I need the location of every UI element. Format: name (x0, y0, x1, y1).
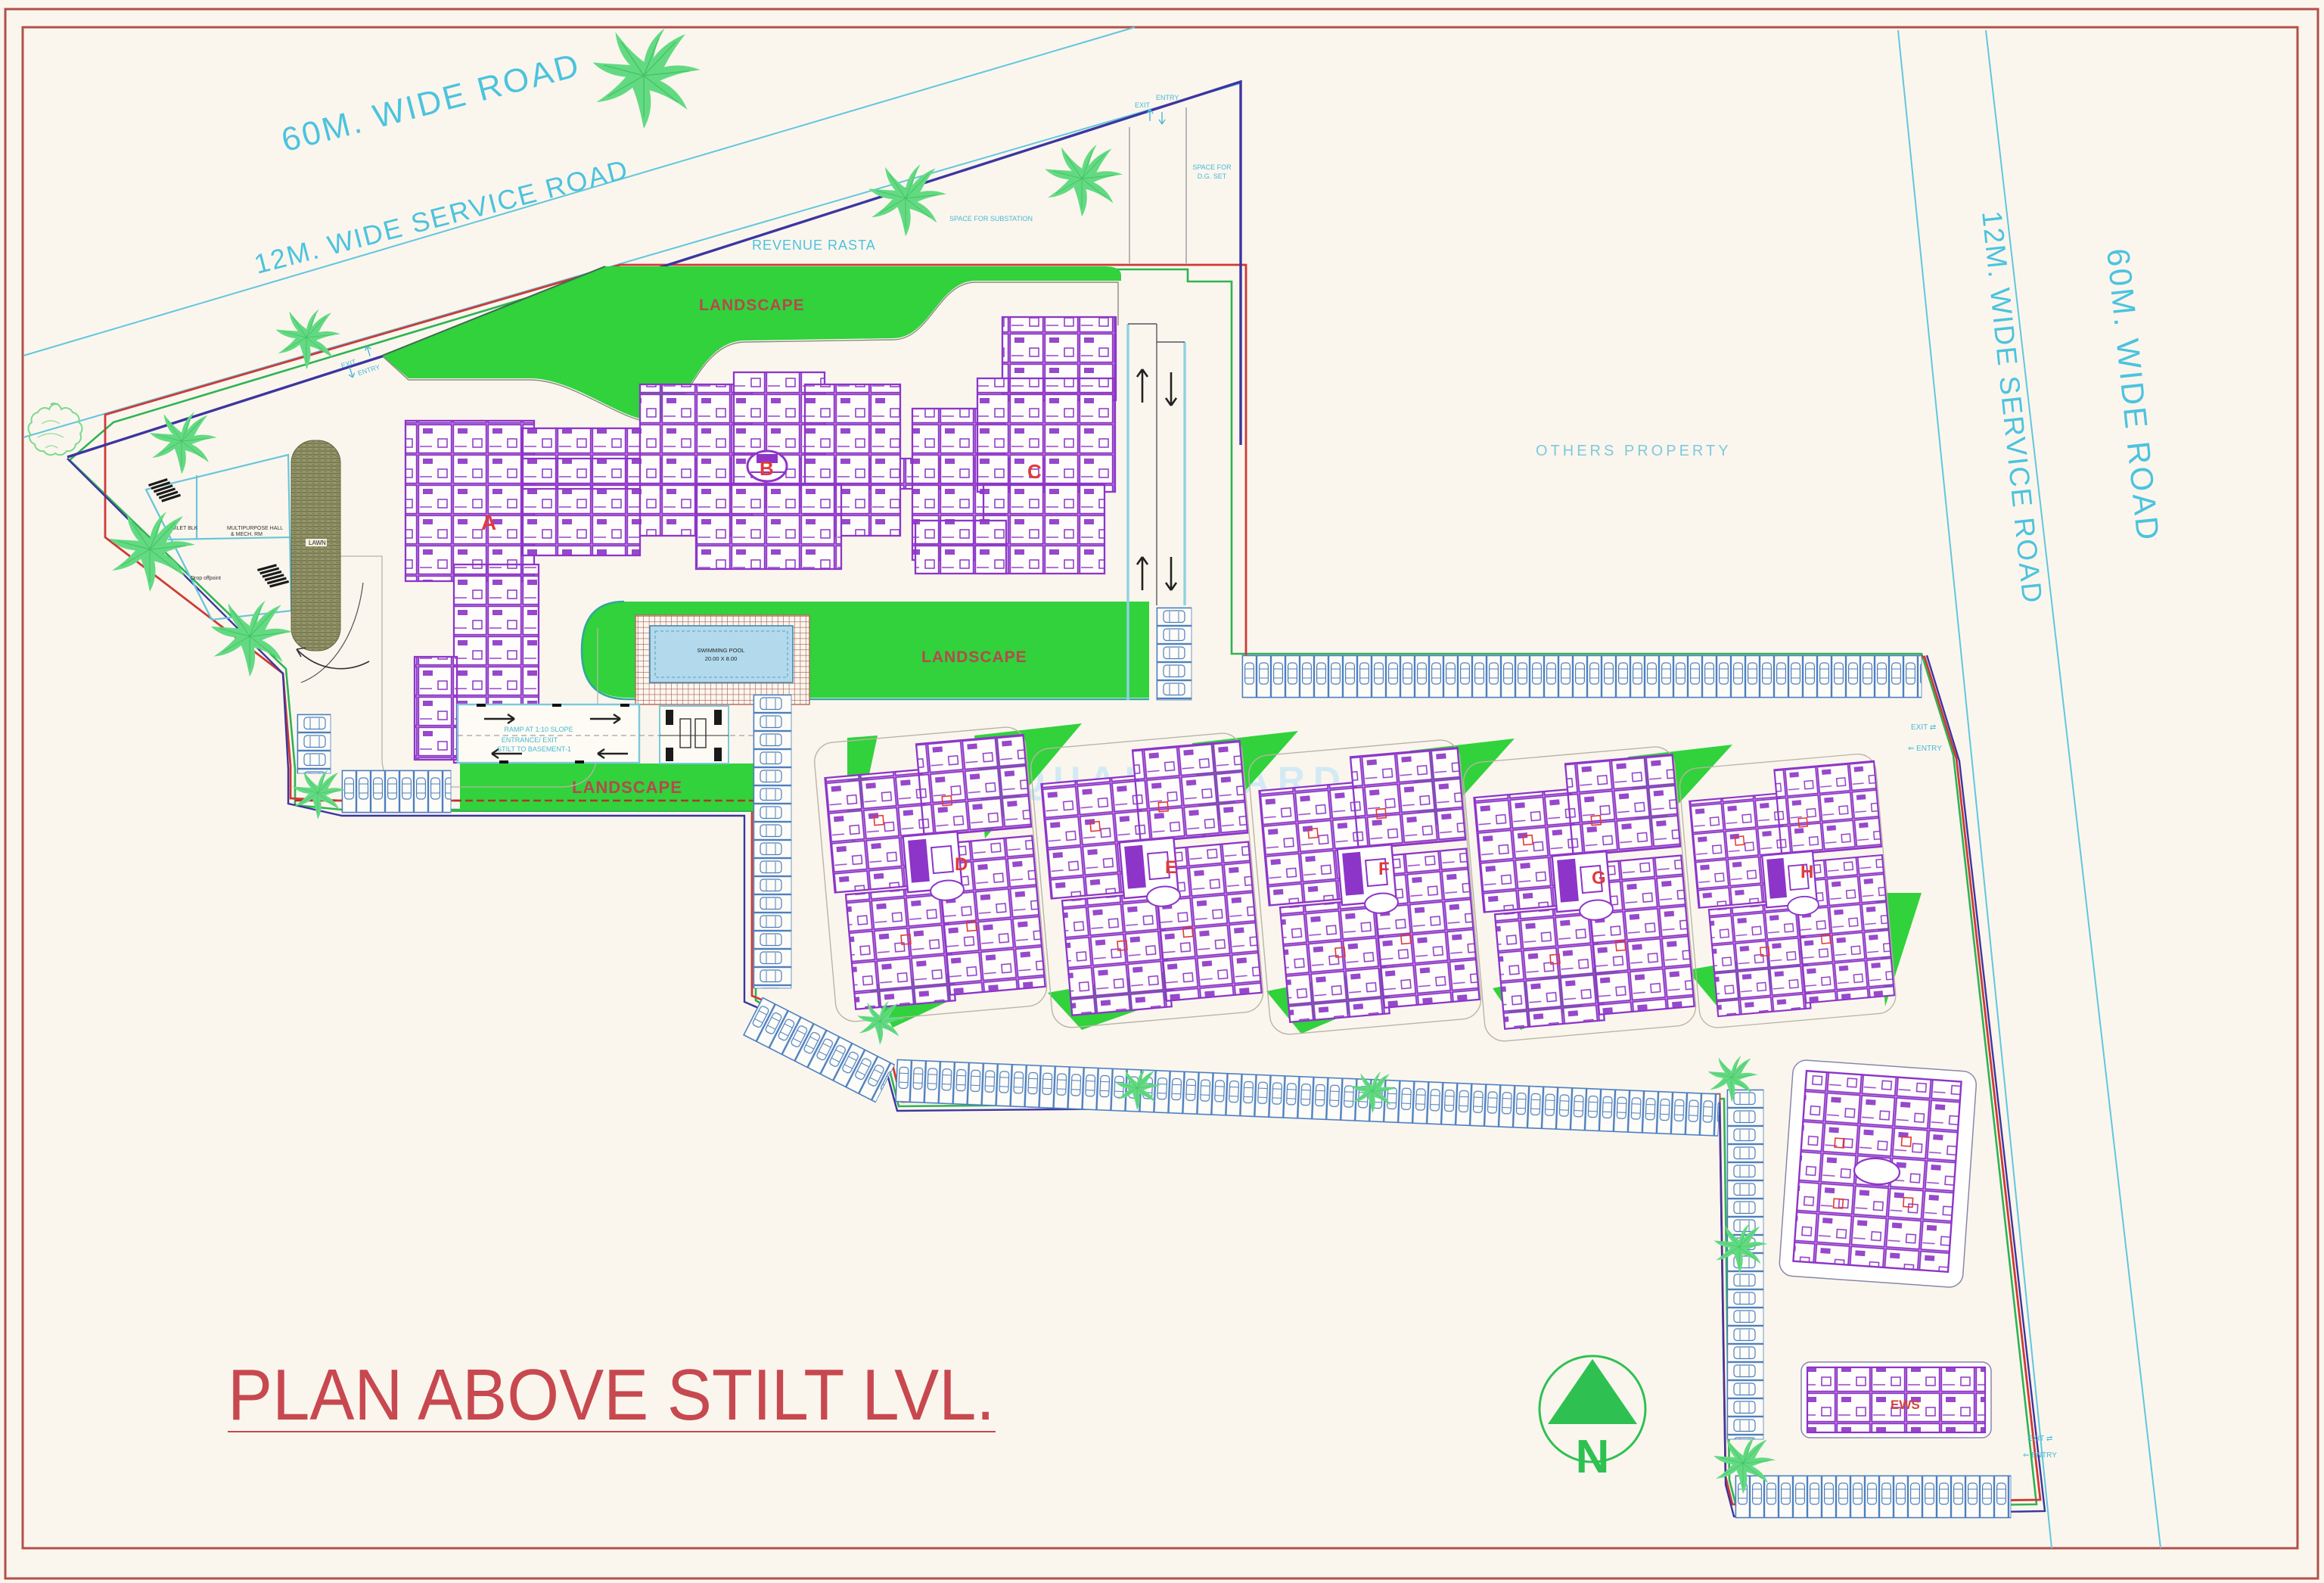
svg-text:MULTIPURPOSE HALL: MULTIPURPOSE HALL (227, 526, 283, 531)
svg-text:EWS: EWS (1891, 1398, 1920, 1412)
svg-text:B: B (760, 457, 774, 480)
svg-text:D: D (955, 854, 968, 875)
svg-text:EXIT ⇄: EXIT ⇄ (1911, 723, 1936, 732)
svg-text:ENTRANCE/ EXIT: ENTRANCE/ EXIT (502, 736, 558, 744)
svg-text:ENTRY: ENTRY (1156, 94, 1179, 101)
svg-text:& MECH. RM: & MECH. RM (231, 532, 263, 537)
svg-text:F: F (1378, 859, 1390, 879)
svg-text:LANDSCAPE: LANDSCAPE (572, 778, 682, 797)
svg-text:EXIT: EXIT (1135, 101, 1151, 109)
svg-text:OTHERS PROPERTY: OTHERS PROPERTY (1536, 443, 1732, 459)
svg-text:G: G (1592, 868, 1606, 888)
svg-text:LANDSCAPE: LANDSCAPE (699, 297, 805, 314)
svg-text:D.G. SET: D.G. SET (1198, 173, 1227, 180)
svg-text:C: C (1027, 460, 1042, 483)
svg-text:SWIMMING POOL: SWIMMING POOL (698, 647, 745, 654)
svg-text:⇐ ENTRY: ⇐ ENTRY (1908, 745, 1942, 753)
svg-text:EXIT ⇄: EXIT ⇄ (2027, 1435, 2052, 1443)
svg-text:E: E (1165, 857, 1177, 878)
svg-text:SPACE FOR: SPACE FOR (1192, 163, 1232, 171)
svg-text:⇐ ENTRY: ⇐ ENTRY (2023, 1451, 2057, 1460)
svg-text:LAWN: LAWN (309, 540, 326, 546)
svg-text:RAMP AT 1:10 SLOPE: RAMP AT 1:10 SLOPE (504, 726, 573, 733)
svg-text:SPACE FOR SUBSTATION: SPACE FOR SUBSTATION (949, 215, 1033, 222)
svg-text:Drop offpoint: Drop offpoint (191, 576, 221, 581)
svg-text:LANDSCAPE: LANDSCAPE (921, 648, 1027, 666)
svg-text:REVENUE RASTA: REVENUE RASTA (752, 238, 876, 253)
svg-text:N: N (1576, 1431, 1610, 1483)
svg-text:H: H (1800, 862, 1813, 882)
svg-text:STILT TO BASEMENT-1: STILT TO BASEMENT-1 (497, 745, 571, 753)
svg-text:PLAN ABOVE STILT LVL.: PLAN ABOVE STILT LVL. (228, 1354, 995, 1435)
svg-text:A: A (481, 511, 496, 534)
svg-text:20.00 X 8.00: 20.00 X 8.00 (705, 655, 738, 662)
